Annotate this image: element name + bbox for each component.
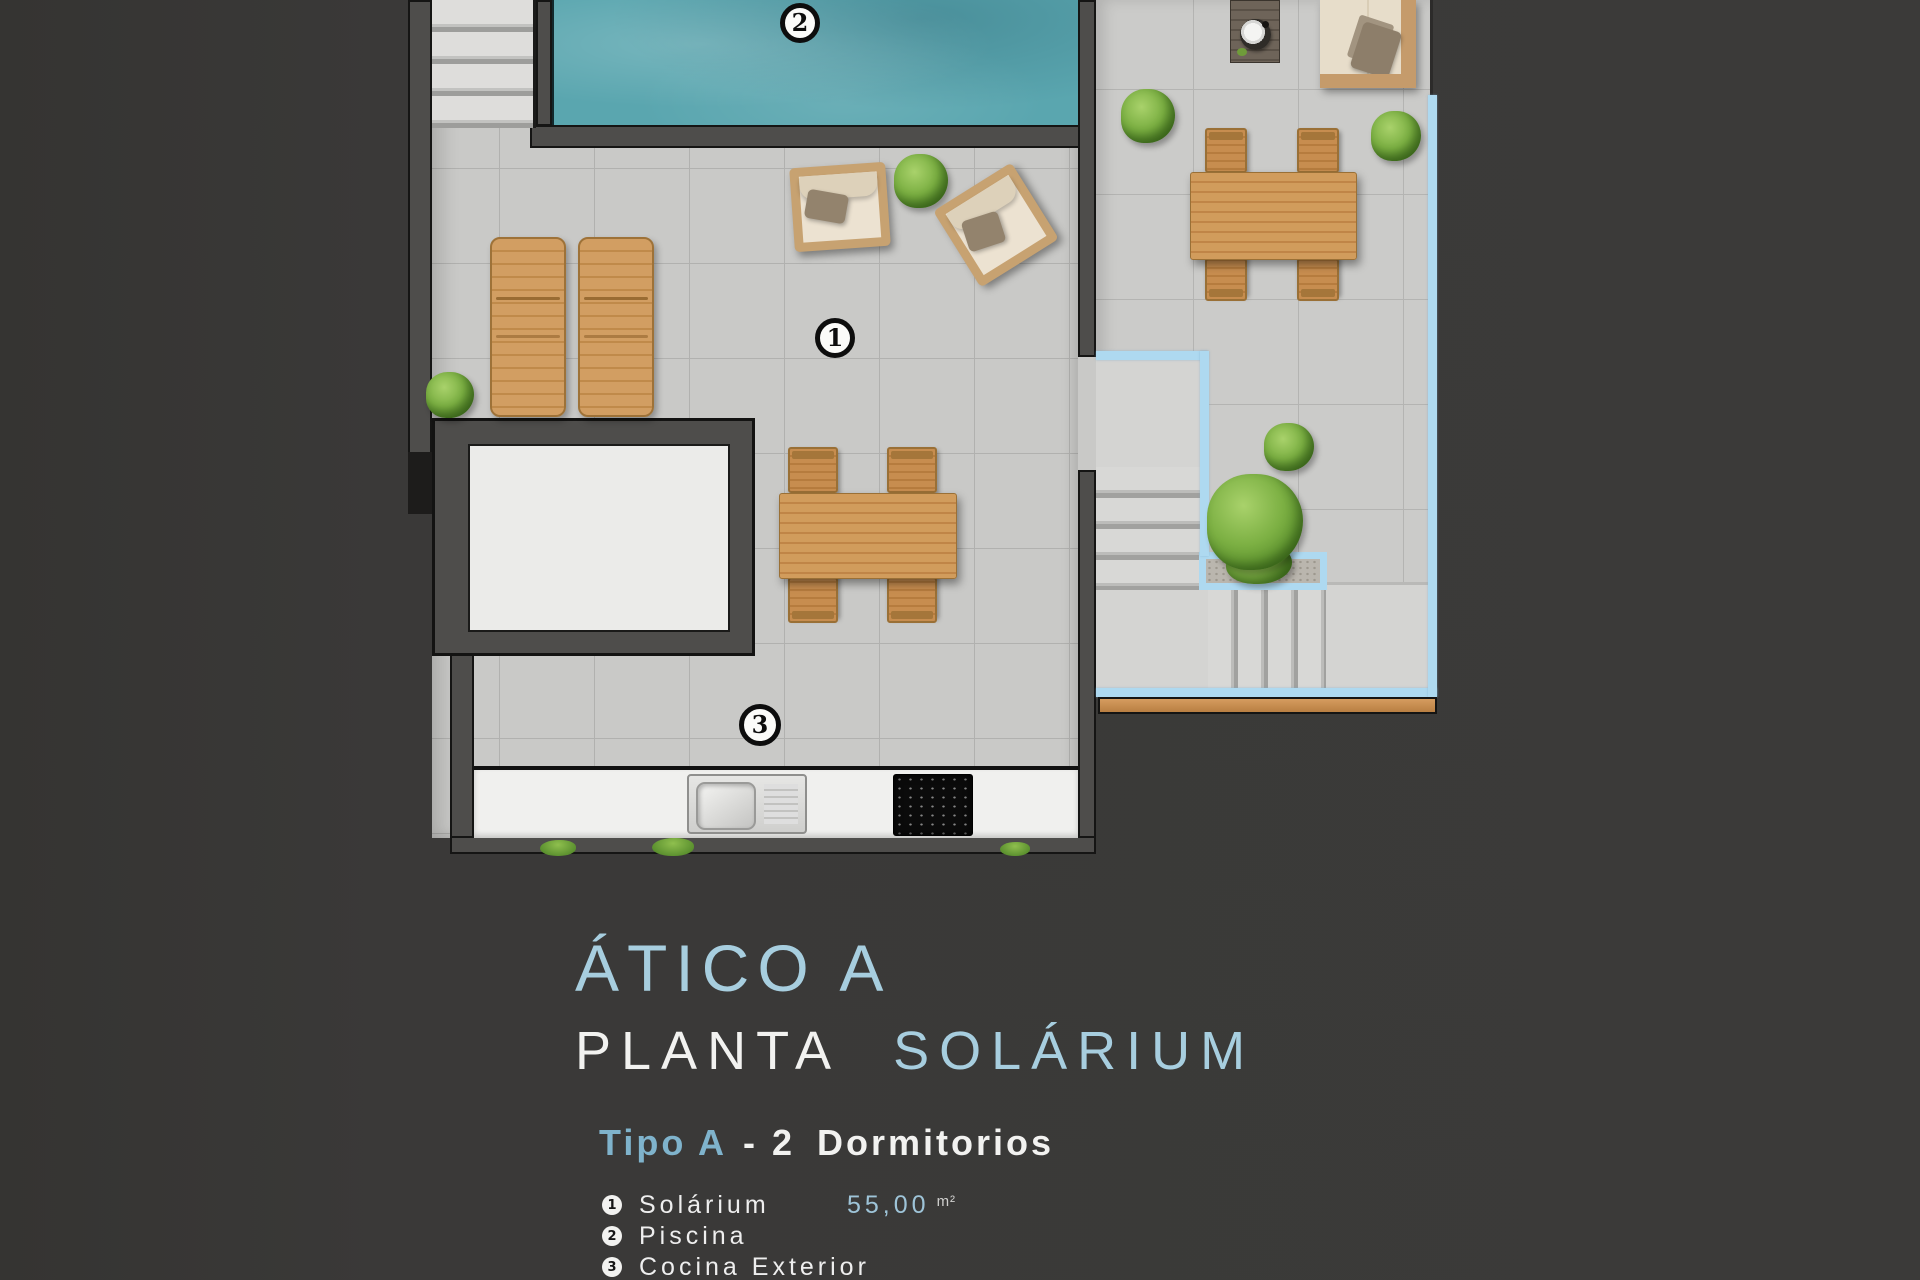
sofa-pillow: [1350, 21, 1403, 79]
legend-bullet-3: 3: [602, 1257, 622, 1277]
bbq-grill-icon: [1240, 19, 1271, 50]
type-line: Tipo A-2Dormitorios: [599, 1122, 1475, 1164]
legend-area-unit: m²: [937, 1193, 957, 1210]
legend-bullet-2: 2: [602, 1226, 622, 1246]
type-accent: Tipo A: [599, 1122, 727, 1163]
plant-tuft: [540, 840, 576, 856]
plan-marker-cocina: 3: [739, 704, 781, 746]
dining-chair: [788, 447, 838, 493]
bbq-deck: [1230, 0, 1280, 63]
sink-basin: [696, 782, 756, 830]
kitchen-hob: [893, 774, 973, 836]
legend-label: Cocina Exterior: [639, 1253, 870, 1280]
legend-item-piscina: 2 Piscina: [602, 1223, 1475, 1249]
sink-drainer: [764, 784, 798, 824]
stair-landing-left: [1096, 590, 1208, 688]
dining-table: [1190, 172, 1357, 260]
dining-chair: [1297, 128, 1339, 173]
floor-plan: 1 2 3: [0, 0, 1920, 900]
boundary-line-bottom: [1096, 688, 1437, 697]
legend: 1 Solárium 55,00 m² 2 Piscina 3 Cocina E…: [602, 1192, 1475, 1280]
pool-edge-left: [536, 0, 552, 126]
type-rest: Dormitorios: [817, 1122, 1054, 1163]
plan-subtitle: PLANTASOLÁRIUM: [575, 1020, 1475, 1082]
dining-chair: [788, 577, 838, 623]
door-opening-tiles: [1078, 357, 1096, 470]
plant-tuft: [652, 838, 694, 856]
pool-edge-bottom: [530, 125, 1092, 148]
dining-chair: [1205, 128, 1247, 173]
plan-title: ÁTICO A: [575, 930, 1475, 1006]
legend-item-solarium: 1 Solárium 55,00 m²: [602, 1192, 1475, 1218]
stairs-upper-flight: [1096, 467, 1200, 590]
sun-lounger: [490, 237, 566, 417]
east-wall-lower: [1078, 470, 1096, 854]
subtitle-accent: SOLÁRIUM: [893, 1021, 1255, 1081]
boundary-line-top: [1096, 351, 1208, 360]
legend-bullet-1: 1: [602, 1195, 622, 1215]
armchair: [789, 162, 891, 252]
dining-chair: [887, 447, 937, 493]
stair-landing-top: [1096, 360, 1200, 467]
type-number: 2: [772, 1122, 795, 1163]
legend-label: Solárium: [639, 1191, 847, 1220]
legend-item-cocina: 3 Cocina Exterior: [602, 1254, 1475, 1280]
dining-chair: [887, 577, 937, 623]
type-dash: -: [743, 1122, 758, 1163]
staircase-top-left: [430, 0, 536, 128]
plant-tuft: [1000, 842, 1030, 856]
terrace-wood-edge: [1098, 697, 1437, 714]
dining-table: [779, 493, 957, 579]
kitchen-sink: [687, 774, 807, 834]
stair-bulkhead-interior: [468, 444, 730, 632]
stairs-lower-flight: [1208, 588, 1326, 688]
legend-area-value: 55,00: [847, 1191, 930, 1220]
subtitle-primary: PLANTA: [575, 1021, 841, 1081]
legend-label: Piscina: [639, 1222, 847, 1251]
plan-marker-piscina: 2: [780, 3, 820, 43]
boundary-line-right: [1428, 95, 1437, 697]
solarium-plan-page: 1 2 3 ÁTICO A PLANTASOLÁRIUM Tipo A-2Dor…: [0, 0, 1920, 1280]
plan-marker-solarium: 1: [815, 318, 855, 358]
stair-landing-right: [1326, 582, 1428, 688]
east-wall-upper: [1078, 0, 1096, 357]
dining-chair: [1297, 258, 1339, 301]
bbq-plant: [1237, 48, 1247, 56]
caption-block: ÁTICO A PLANTASOLÁRIUM Tipo A-2Dormitori…: [575, 930, 1475, 1280]
sun-lounger: [578, 237, 654, 417]
dining-chair: [1205, 258, 1247, 301]
outdoor-sofa: [1320, 0, 1416, 88]
